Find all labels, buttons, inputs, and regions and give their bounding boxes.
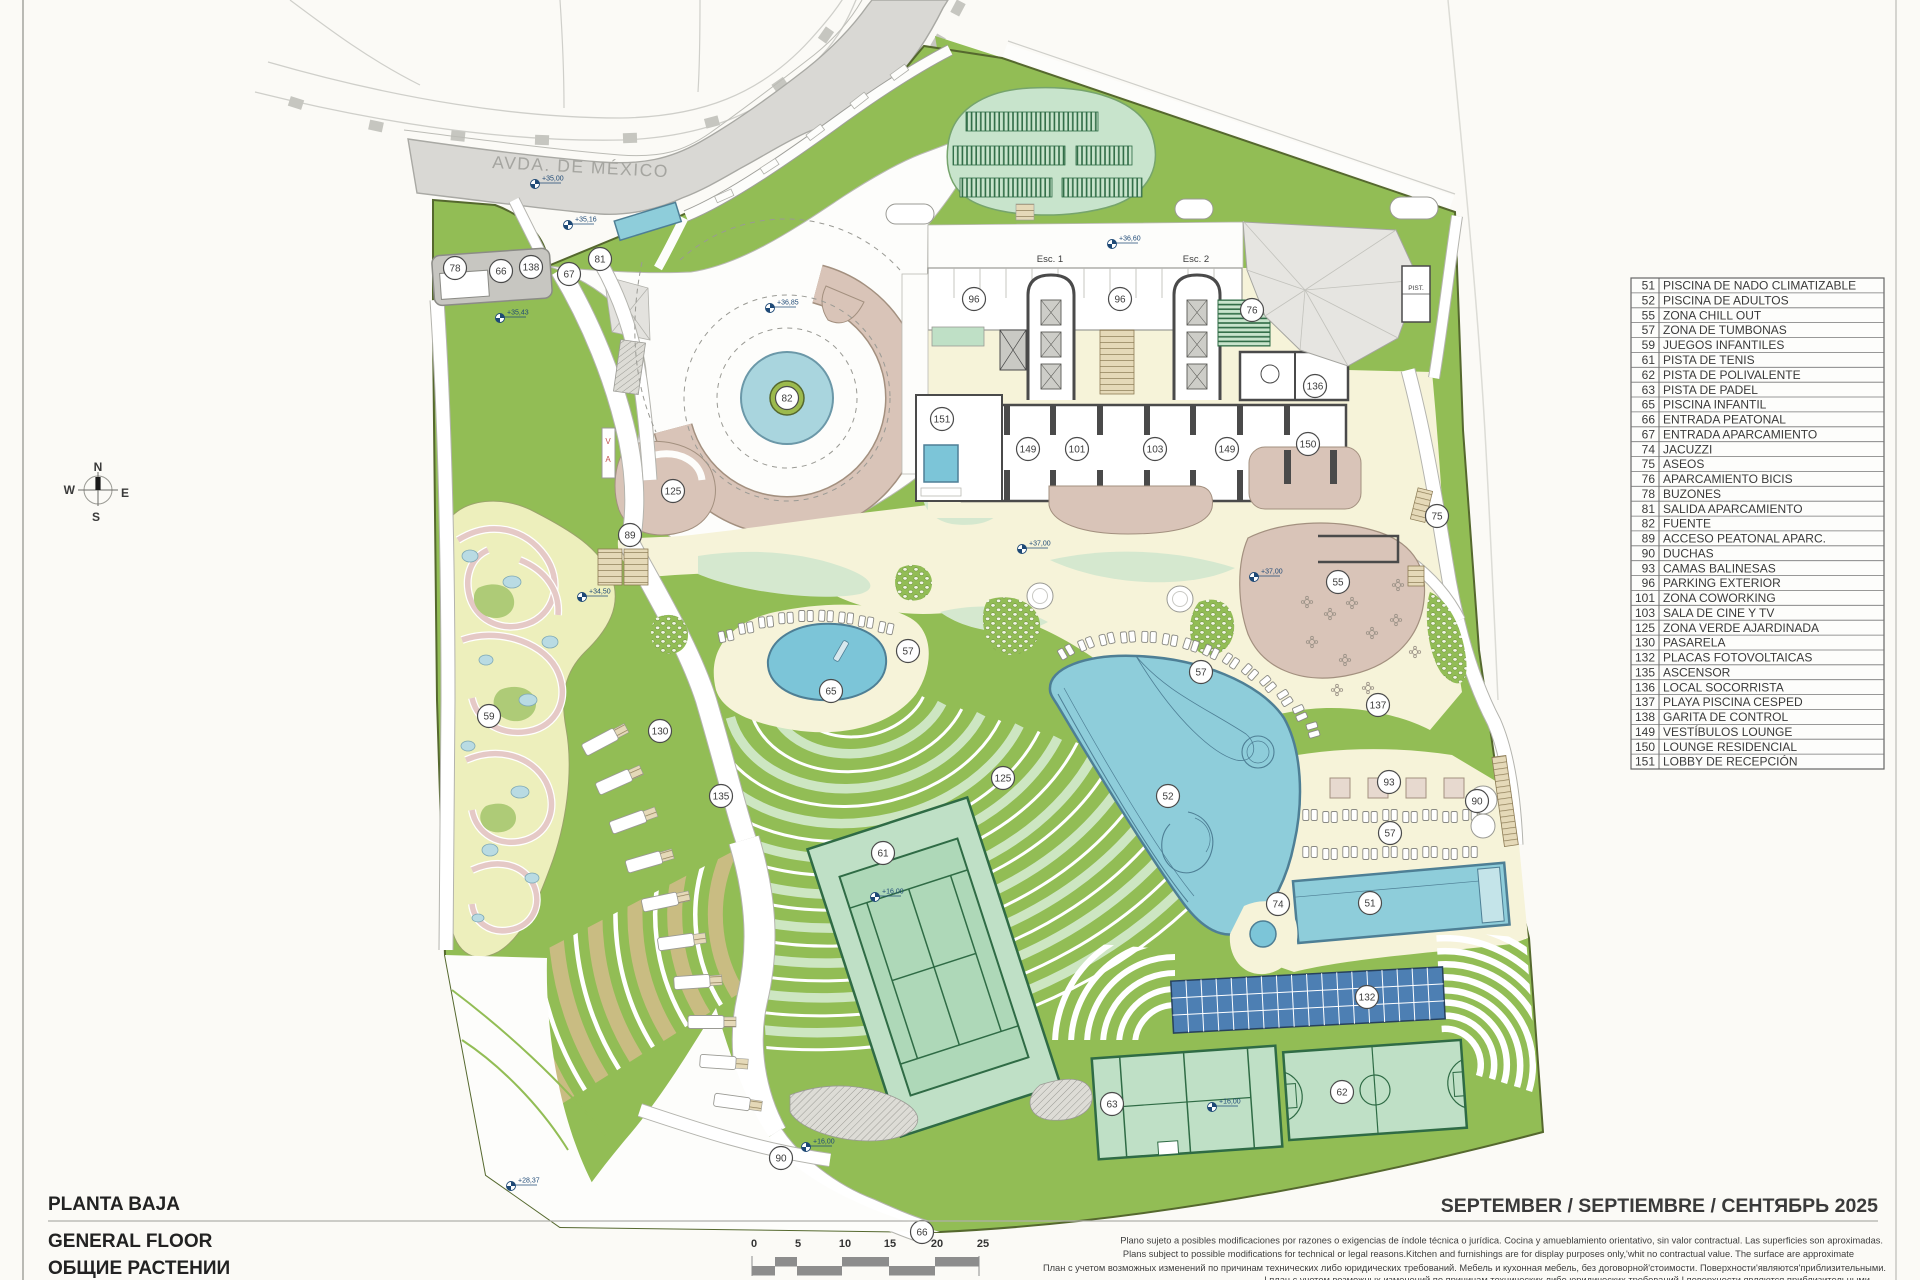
svg-text:130: 130 [652, 727, 669, 738]
svg-text:89: 89 [1642, 532, 1656, 546]
svg-text:SEPTEMBER / SEPTIEMBRE / СЕНТЯ: SEPTEMBER / SEPTIEMBRE / СЕНТЯБРЬ 2025 [1441, 1195, 1878, 1217]
svg-text:ZONA COWORKING: ZONA COWORKING [1663, 591, 1776, 605]
svg-text:76: 76 [1246, 306, 1258, 317]
svg-text:75: 75 [1642, 457, 1656, 471]
svg-text:+36,85: +36,85 [777, 300, 799, 307]
svg-text:PLACAS FOTOVOLTAICAS: PLACAS FOTOVOLTAICAS [1663, 651, 1812, 665]
svg-text:75: 75 [1431, 512, 1443, 523]
svg-text:GARITA DE CONTROL: GARITA DE CONTROL [1663, 710, 1788, 724]
svg-text:20: 20 [931, 1238, 943, 1250]
svg-text:96: 96 [1642, 576, 1656, 590]
svg-text:149: 149 [1635, 725, 1655, 739]
svg-text:+16,00: +16,00 [1219, 1099, 1241, 1106]
svg-text:ACCESO PEATONAL APARC.: ACCESO PEATONAL APARC. [1663, 532, 1826, 546]
svg-text:Esc. 1: Esc. 1 [1037, 254, 1063, 265]
svg-text:66: 66 [495, 267, 507, 278]
svg-text:65: 65 [1642, 398, 1656, 412]
svg-text:90: 90 [775, 1154, 787, 1165]
svg-text:130: 130 [1635, 636, 1655, 650]
svg-text:151: 151 [934, 415, 951, 426]
svg-text:PLAYA PISCINA CESPED: PLAYA PISCINA CESPED [1663, 695, 1803, 709]
svg-text:78: 78 [1642, 487, 1656, 501]
svg-text:+16,00: +16,00 [882, 889, 904, 896]
svg-text:151: 151 [1635, 755, 1655, 769]
svg-text:103: 103 [1147, 445, 1164, 456]
svg-text:93: 93 [1383, 778, 1395, 789]
svg-text:61: 61 [1642, 353, 1656, 367]
svg-text:61: 61 [877, 849, 889, 860]
svg-text:51: 51 [1642, 279, 1656, 293]
svg-text:LOBBY DE RECEPCIÓN: LOBBY DE RECEPCIÓN [1663, 754, 1797, 769]
svg-text:103: 103 [1635, 606, 1655, 620]
svg-text:137: 137 [1370, 701, 1387, 712]
svg-text:89: 89 [624, 531, 636, 542]
svg-text:+28,37: +28,37 [518, 1178, 540, 1185]
svg-text:67: 67 [1642, 427, 1656, 441]
svg-text:55: 55 [1332, 578, 1344, 589]
svg-text:+37,00: +37,00 [1029, 541, 1051, 548]
svg-text:Esc. 2: Esc. 2 [1183, 254, 1209, 265]
svg-text:+35,16: +35,16 [575, 217, 597, 224]
svg-text:CAMAS BALINESAS: CAMAS BALINESAS [1663, 561, 1776, 575]
svg-text:63: 63 [1106, 1100, 1118, 1111]
svg-text:FUENTE: FUENTE [1663, 517, 1711, 531]
svg-text:+16,00: +16,00 [813, 1139, 835, 1146]
svg-text:74: 74 [1272, 900, 1284, 911]
svg-text:VESTÍBULOS LOUNGE: VESTÍBULOS LOUNGE [1663, 724, 1792, 739]
svg-text:ASCENSOR: ASCENSOR [1663, 666, 1731, 680]
svg-text:JACUZZI: JACUZZI [1663, 442, 1712, 456]
svg-text:V: V [605, 437, 611, 446]
svg-text:136: 136 [1307, 382, 1324, 393]
svg-text:0: 0 [751, 1238, 757, 1250]
svg-text:138: 138 [1635, 710, 1655, 724]
svg-text:90: 90 [1471, 797, 1483, 808]
svg-text:ZONA DE TUMBONAS: ZONA DE TUMBONAS [1663, 323, 1787, 337]
svg-text:93: 93 [1642, 561, 1656, 575]
svg-text:+35,43: +35,43 [507, 310, 529, 317]
svg-text:SALIDA APARCAMIENTO: SALIDA APARCAMIENTO [1663, 502, 1803, 516]
svg-text:67: 67 [563, 270, 575, 281]
svg-text:62: 62 [1642, 368, 1656, 382]
svg-text:82: 82 [1642, 517, 1656, 531]
svg-text:DUCHAS: DUCHAS [1663, 546, 1714, 560]
svg-text:S: S [92, 510, 100, 524]
svg-text:PLANTA BAJA: PLANTA BAJA [48, 1194, 180, 1215]
svg-text:+35,00: +35,00 [542, 176, 564, 183]
svg-text:ENTRADA PEATONAL: ENTRADA PEATONAL [1663, 413, 1786, 427]
svg-text:125: 125 [995, 774, 1012, 785]
svg-text:132: 132 [1359, 993, 1376, 1004]
svg-text:E: E [121, 486, 129, 500]
svg-text:+36,60: +36,60 [1119, 236, 1141, 243]
svg-text:SALA DE CINE Y TV: SALA DE CINE Y TV [1663, 606, 1774, 620]
svg-text:10: 10 [839, 1238, 851, 1250]
svg-text:136: 136 [1635, 680, 1655, 694]
svg-text:ZONA VERDE AJARDINADA: ZONA VERDE AJARDINADA [1663, 621, 1819, 635]
svg-text:132: 132 [1635, 651, 1655, 665]
svg-text:55: 55 [1642, 308, 1656, 322]
svg-text:138: 138 [523, 263, 540, 274]
svg-text:Plano sujeto a posibles modifi: Plano sujeto a posibles modificaciones p… [1120, 1236, 1883, 1246]
svg-text:135: 135 [713, 792, 730, 803]
svg-text:57: 57 [1384, 829, 1396, 840]
svg-text:+34,50: +34,50 [589, 589, 611, 596]
svg-text:APARCAMIENTO BICIS: APARCAMIENTO BICIS [1663, 472, 1793, 486]
svg-text:ZONA CHILL OUT: ZONA CHILL OUT [1663, 308, 1762, 322]
svg-text:JUEGOS INFANTILES: JUEGOS INFANTILES [1663, 338, 1784, 352]
svg-text:65: 65 [825, 687, 837, 698]
svg-text:125: 125 [1635, 621, 1655, 635]
svg-text:PISTA DE TENIS: PISTA DE TENIS [1663, 353, 1755, 367]
svg-text:52: 52 [1162, 792, 1174, 803]
svg-text:101: 101 [1069, 445, 1086, 456]
svg-text:59: 59 [483, 712, 495, 723]
svg-text:ASEOS: ASEOS [1663, 457, 1704, 471]
svg-text:PASARELA: PASARELA [1663, 636, 1725, 650]
svg-text:W: W [64, 483, 76, 497]
svg-text:66: 66 [916, 1228, 928, 1239]
svg-text:63: 63 [1642, 383, 1656, 397]
svg-text:74: 74 [1642, 442, 1656, 456]
svg-text:PISCINA DE ADULTOS: PISCINA DE ADULTOS [1663, 294, 1789, 308]
svg-text:25: 25 [977, 1238, 989, 1250]
svg-text:96: 96 [968, 295, 980, 306]
svg-text:149: 149 [1219, 445, 1236, 456]
svg-text:66: 66 [1642, 413, 1656, 427]
svg-text:ENTRADA APARCAMIENTO: ENTRADA APARCAMIENTO [1663, 427, 1817, 441]
svg-text:149: 149 [1020, 445, 1037, 456]
svg-text:+37,00: +37,00 [1261, 569, 1283, 576]
svg-text:81: 81 [1642, 502, 1656, 516]
svg-text:PISTA DE PADEL: PISTA DE PADEL [1663, 383, 1758, 397]
svg-text:15: 15 [884, 1238, 896, 1250]
svg-text:BUZONES: BUZONES [1663, 487, 1721, 501]
svg-text:125: 125 [665, 487, 682, 498]
svg-text:62: 62 [1336, 1088, 1348, 1099]
svg-text:90: 90 [1642, 546, 1656, 560]
svg-text:81: 81 [594, 255, 606, 266]
svg-text:137: 137 [1635, 695, 1655, 709]
svg-text:135: 135 [1635, 666, 1655, 680]
svg-text:N: N [94, 460, 103, 474]
svg-text:Plans subject to possible modi: Plans subject to possible modifications … [1123, 1249, 1854, 1259]
svg-text:57: 57 [1642, 323, 1656, 337]
svg-text:LOCAL SOCORRISTA: LOCAL SOCORRISTA [1663, 680, 1784, 694]
svg-text:78: 78 [449, 264, 461, 275]
svg-text:План с учетом возможных измене: План с учетом возможных изменений по при… [1043, 1263, 1886, 1273]
svg-text:57: 57 [1195, 668, 1207, 679]
svg-text:PISTA DE POLIVALENTE: PISTA DE POLIVALENTE [1663, 368, 1801, 382]
svg-text:GENERAL FLOOR: GENERAL FLOOR [48, 1231, 213, 1252]
svg-text:I план с учетом возможных изме: I план с учетом возможных изменений по п… [1264, 1275, 1870, 1280]
svg-text:82: 82 [781, 394, 793, 405]
svg-text:ОБЩИЕ РАСТЕНИИ: ОБЩИЕ РАСТЕНИИ [48, 1258, 230, 1279]
svg-text:96: 96 [1114, 295, 1126, 306]
svg-text:PIST.: PIST. [1408, 285, 1424, 292]
svg-text:52: 52 [1642, 294, 1656, 308]
svg-text:51: 51 [1364, 899, 1376, 910]
svg-text:101: 101 [1635, 591, 1655, 605]
svg-text:PISCINA INFANTIL: PISCINA INFANTIL [1663, 398, 1767, 412]
svg-text:A: A [605, 455, 611, 464]
svg-text:150: 150 [1300, 440, 1317, 451]
svg-text:PISCINA DE NADO CLIMATIZABLE: PISCINA DE NADO CLIMATIZABLE [1663, 279, 1856, 293]
svg-text:5: 5 [795, 1238, 801, 1250]
svg-text:LOUNGE RESIDENCIAL: LOUNGE RESIDENCIAL [1663, 740, 1797, 754]
svg-text:PARKING EXTERIOR: PARKING EXTERIOR [1663, 576, 1781, 590]
svg-text:76: 76 [1642, 472, 1656, 486]
svg-text:150: 150 [1635, 740, 1655, 754]
svg-text:59: 59 [1642, 338, 1656, 352]
svg-text:57: 57 [902, 647, 914, 658]
